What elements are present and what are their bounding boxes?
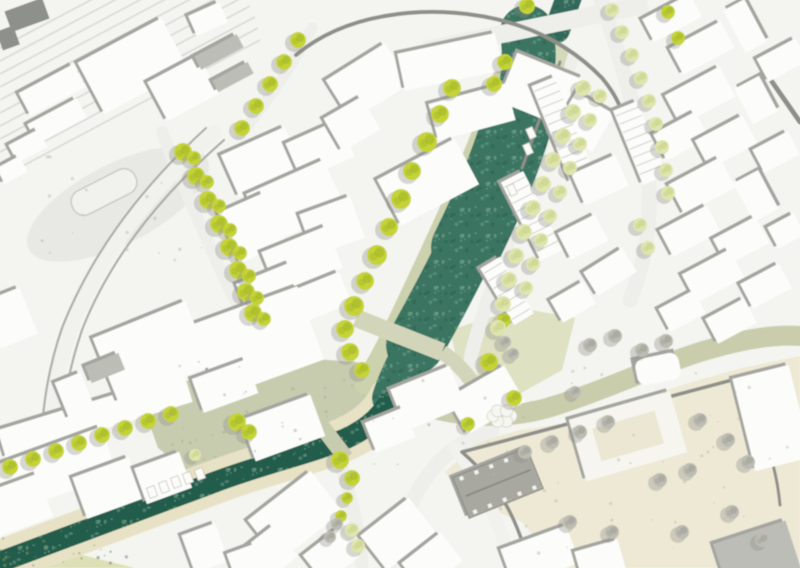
tree-canopy-blob — [657, 145, 663, 151]
ground-speckle — [548, 397, 550, 399]
ground-speckle — [695, 372, 697, 374]
tree-canopy-blob — [520, 450, 526, 456]
ground-speckle — [294, 429, 297, 432]
tree-canopy-blob — [663, 191, 669, 197]
ground-speckle — [96, 556, 99, 559]
tree-canopy-blob — [743, 460, 749, 466]
tree-canopy-blob — [433, 112, 440, 119]
ground-speckle — [209, 179, 212, 182]
ground-speckle — [363, 394, 365, 396]
tree-canopy-blob — [661, 168, 667, 174]
ground-speckle — [713, 502, 715, 504]
tree-canopy-blob — [222, 245, 229, 252]
tree-canopy-blob — [463, 422, 469, 428]
ground-speckle — [80, 557, 82, 559]
tree-canopy-blob — [585, 118, 591, 124]
ground-speckle — [610, 519, 613, 522]
tree-canopy-blob — [655, 478, 661, 484]
tree-canopy-blob — [394, 197, 402, 205]
tree-canopy-blob — [637, 348, 643, 354]
tree-canopy-blob — [508, 396, 514, 402]
tree-canopy-blob — [663, 10, 669, 16]
tree-canopy-blob — [347, 528, 353, 534]
ground-speckle — [281, 468, 283, 470]
ground-speckle — [239, 430, 242, 433]
ground-speckle — [324, 387, 327, 390]
ground-speckle — [483, 396, 486, 399]
masterplan-canvas — [0, 0, 800, 568]
ground-speckle — [243, 393, 245, 395]
ground-speckle — [525, 525, 528, 528]
tree-canopy-blob — [326, 536, 331, 541]
ground-speckle — [71, 177, 74, 180]
ground-speckle — [737, 418, 739, 420]
ground-speckle — [340, 437, 343, 440]
tree-canopy-blob — [557, 134, 563, 140]
ground-speckle — [211, 434, 213, 436]
tree-canopy-blob — [547, 440, 553, 446]
ground-speckle — [169, 413, 172, 416]
ground-speckle — [509, 498, 512, 501]
tree-canopy-blob — [577, 86, 583, 92]
ground-speckle — [571, 382, 573, 384]
ground-speckle — [161, 182, 163, 184]
tree-canopy-blob — [603, 420, 609, 426]
ground-speckle — [189, 441, 192, 444]
ground-speckle — [214, 456, 216, 458]
ground-speckle — [530, 400, 532, 402]
ground-speckle — [2, 537, 4, 539]
tree-canopy-blob — [343, 497, 348, 502]
ground-speckle — [5, 552, 7, 554]
ground-speckle — [710, 415, 711, 416]
ground-speckle — [632, 434, 635, 437]
tree-canopy-blob — [201, 198, 208, 205]
tree-canopy-blob — [685, 468, 691, 474]
ground-speckle — [617, 458, 620, 461]
ground-speckle — [72, 232, 74, 234]
ground-speckle — [48, 194, 52, 198]
ground-speckle — [146, 195, 149, 198]
ground-speckle — [3, 564, 6, 567]
ground-speckle — [205, 185, 207, 187]
ground-speckle — [109, 561, 112, 564]
tree-canopy-blob — [347, 304, 355, 312]
site-plan — [0, 0, 800, 568]
tree-canopy-blob — [333, 458, 340, 465]
tree-canopy-blob — [346, 476, 352, 482]
tree-canopy-blob — [243, 430, 249, 436]
ground-speckle — [651, 519, 653, 521]
tree-canopy-blob — [236, 126, 242, 132]
tree-canopy-blob — [202, 180, 208, 186]
ground-speckle — [222, 431, 225, 434]
tree-canopy-blob — [50, 449, 56, 455]
tree-canopy-blob — [627, 53, 633, 59]
ground-speckle — [397, 464, 399, 466]
ground-speckle — [662, 390, 666, 394]
tree-canopy-blob — [545, 214, 551, 220]
tree-canopy-blob — [252, 296, 258, 302]
ground-speckle — [343, 379, 346, 382]
ground-speckle — [483, 500, 485, 502]
ground-speckle — [9, 563, 12, 566]
ground-speckle — [522, 416, 525, 419]
tree-canopy-blob — [73, 441, 79, 447]
tree-canopy-blob — [518, 230, 524, 236]
ground-speckle — [82, 214, 84, 216]
tree-canopy-blob — [212, 222, 219, 229]
tree-canopy-blob — [292, 38, 298, 44]
tree-canopy-blob — [27, 457, 33, 463]
ground-speckle — [373, 420, 374, 421]
ground-speckle — [305, 454, 307, 456]
ground-speckle — [732, 436, 735, 439]
tree-canopy-blob — [509, 353, 514, 358]
ground-speckle — [557, 482, 559, 484]
ground-speckle — [683, 480, 686, 483]
ground-speckle — [741, 425, 742, 426]
tree-canopy-blob — [246, 311, 253, 318]
tree-canopy-blob — [547, 158, 553, 164]
ground-speckle — [392, 418, 394, 420]
tree-canopy-blob — [677, 530, 683, 536]
tree-canopy-blob — [695, 418, 701, 424]
tree-canopy-blob — [565, 166, 571, 172]
ground-speckle — [245, 391, 247, 393]
tree-canopy-blob — [757, 538, 763, 544]
tree-canopy-blob — [405, 169, 412, 176]
ground-speckle — [198, 361, 200, 363]
tree-canopy-blob — [565, 520, 571, 526]
tree-canopy-blob — [235, 251, 241, 257]
ground-speckle — [743, 516, 745, 518]
tree-canopy-blob — [278, 60, 284, 66]
tree-canopy-blob — [176, 150, 183, 157]
tree-canopy-blob — [244, 274, 250, 280]
tree-canopy-blob — [643, 246, 649, 252]
tree-canopy-blob — [497, 302, 503, 308]
ground-speckle — [723, 518, 725, 520]
ground-speckle — [181, 440, 184, 443]
tree-canopy-blob — [338, 327, 345, 334]
ground-speckle — [554, 499, 557, 502]
ground-speckle — [609, 502, 612, 505]
ground-speckle — [198, 155, 200, 157]
tree-canopy-blob — [356, 368, 362, 374]
ground-speckle — [374, 463, 376, 465]
tree-canopy-blob — [501, 341, 506, 346]
tree-canopy-blob — [537, 182, 543, 188]
ground-speckle — [786, 446, 789, 449]
tree-canopy-blob — [571, 391, 576, 396]
ground-speckle — [574, 559, 576, 561]
ground-speckle — [462, 442, 465, 445]
ground-speckle — [543, 489, 546, 492]
map-root — [0, 0, 800, 568]
ground-speckle — [706, 450, 709, 453]
tree-canopy-blob — [231, 268, 238, 275]
ground-speckle — [567, 547, 569, 549]
tree-canopy-blob — [250, 104, 256, 110]
tree-canopy-blob — [555, 190, 561, 196]
tree-canopy-blob — [607, 8, 613, 14]
tree-canopy-blob — [528, 262, 534, 268]
ground-speckle — [700, 454, 703, 457]
tree-canopy-blob — [651, 122, 657, 128]
ground-speckle — [2, 559, 5, 562]
tree-canopy-blob — [445, 86, 452, 93]
ground-speckle — [42, 540, 45, 543]
tree-canopy-blob — [230, 420, 237, 427]
ground-speckle — [325, 410, 328, 413]
tree-canopy-blob — [96, 433, 102, 439]
tree-canopy-blob — [492, 326, 498, 332]
ground-speckle — [499, 507, 502, 510]
ground-speckle — [674, 521, 677, 524]
ground-speckle — [712, 446, 714, 448]
tree-canopy-blob — [527, 206, 533, 212]
ground-speckle — [153, 217, 157, 221]
ground-speckle — [600, 373, 603, 376]
tree-canopy-blob — [536, 238, 542, 244]
ground-speckle — [17, 565, 19, 567]
ground-speckle — [568, 431, 569, 432]
ground-speckle — [55, 547, 57, 549]
ground-speckle — [125, 555, 128, 558]
tree-canopy-blob — [636, 76, 642, 82]
ground-speckle — [48, 551, 50, 553]
tree-canopy-blob — [661, 339, 667, 345]
ground-speckle — [183, 427, 184, 428]
ground-speckle — [4, 556, 7, 559]
ground-speckle — [44, 545, 47, 548]
ground-speckle — [126, 248, 129, 251]
tree-canopy-blob — [503, 278, 509, 284]
tree-canopy-blob — [225, 228, 231, 234]
tree-canopy-blob — [264, 82, 270, 88]
ground-speckle — [49, 252, 51, 254]
ground-speckle — [780, 526, 783, 529]
ground-speckle — [174, 155, 176, 157]
ground-speckle — [282, 425, 284, 427]
ground-speckle — [717, 421, 719, 423]
ground-speckle — [281, 422, 283, 424]
ground-speckle — [735, 391, 737, 393]
tree-canopy-blob — [142, 419, 148, 425]
ground-speckle — [239, 366, 241, 368]
tree-canopy-blob — [420, 140, 428, 148]
ground-speckle — [241, 440, 243, 442]
tree-canopy-blob — [521, 286, 527, 292]
ground-speckle — [673, 548, 674, 549]
ground-speckle — [421, 379, 424, 382]
ground-speckle — [634, 371, 637, 374]
tree-canopy-blob — [567, 110, 573, 116]
ground-speckle — [487, 442, 490, 445]
ground-speckle — [78, 552, 80, 554]
tree-canopy-blob — [521, 4, 527, 10]
tree-canopy-blob — [482, 360, 489, 367]
tree-canopy-blob — [358, 279, 365, 286]
ground-speckle — [291, 387, 294, 390]
ground-speckle — [326, 415, 328, 417]
ground-speckle — [662, 461, 664, 463]
tree-canopy-blob — [575, 430, 581, 436]
tree-canopy-blob — [499, 60, 505, 66]
ground-speckle — [379, 396, 381, 398]
ground-speckle — [583, 367, 586, 370]
ground-speckle — [254, 450, 256, 452]
tree-canopy-blob — [610, 334, 616, 340]
ground-speckle — [126, 231, 129, 234]
ground-speckle — [93, 545, 95, 547]
ground-speckle — [73, 553, 75, 555]
ground-speckle — [195, 439, 197, 441]
ground-speckle — [174, 259, 177, 262]
tree-canopy-blob — [370, 253, 378, 261]
tree-canopy-blob — [510, 254, 516, 260]
ground-speckle — [41, 239, 44, 242]
tree-canopy-blob — [575, 142, 581, 148]
ground-speckle — [539, 486, 542, 489]
ground-speckle — [171, 443, 174, 446]
ground-speckle — [299, 438, 302, 441]
ground-speckle — [245, 410, 248, 413]
tree-canopy-blob — [189, 174, 196, 181]
ground-speckle — [62, 561, 63, 562]
ground-speckle — [748, 386, 751, 389]
ground-speckle — [85, 188, 88, 191]
tree-canopy-blob — [239, 290, 246, 297]
tree-canopy-blob — [259, 317, 265, 323]
tree-canopy-blob — [343, 350, 350, 357]
ground-speckle — [351, 385, 353, 387]
tree-canopy-blob — [333, 523, 338, 528]
tree-canopy-blob — [635, 223, 641, 229]
ground-speckle — [203, 458, 205, 460]
tree-canopy-blob — [673, 36, 679, 42]
ground-speckle — [158, 252, 160, 254]
ground-speckle — [109, 551, 111, 553]
ground-speckle — [506, 450, 508, 452]
tree-canopy-blob — [191, 454, 196, 459]
ground-speckle — [293, 454, 295, 456]
ground-speckle — [178, 365, 181, 368]
tree-canopy-blob — [382, 225, 389, 232]
ground-speckle — [349, 473, 352, 476]
tree-canopy-blob — [119, 426, 125, 432]
ground-speckle — [769, 458, 771, 460]
ground-speckle — [324, 396, 327, 399]
tree-canopy-blob — [595, 94, 601, 100]
ground-speckle — [723, 486, 725, 488]
ground-speckle — [410, 368, 413, 371]
ground-speckle — [26, 552, 29, 555]
tree-canopy-blob — [4, 465, 10, 471]
ground-speckle — [427, 423, 430, 426]
tree-canopy-blob — [617, 30, 623, 36]
tree-canopy-blob — [585, 343, 591, 349]
ground-speckle — [537, 551, 541, 555]
tree-canopy-blob — [723, 438, 729, 444]
ground-speckle — [201, 247, 203, 249]
tree-canopy-blob — [488, 82, 494, 88]
tree-canopy-blob — [727, 510, 733, 516]
ground-speckle — [178, 248, 181, 251]
ground-speckle — [104, 555, 106, 557]
ground-speckle — [492, 473, 495, 476]
tree-canopy-blob — [214, 204, 220, 210]
ground-speckle — [629, 462, 631, 464]
tree-canopy-blob — [607, 530, 613, 536]
tree-canopy-blob — [353, 544, 359, 550]
ground-speckle — [46, 155, 49, 158]
tree-canopy-blob — [189, 156, 195, 162]
ground-speckle — [32, 564, 34, 566]
ground-speckle — [100, 549, 101, 550]
tree-canopy-blob — [644, 99, 650, 105]
ground-speckle — [571, 370, 574, 373]
ground-speckle — [223, 393, 226, 396]
ground-speckle — [623, 401, 626, 404]
